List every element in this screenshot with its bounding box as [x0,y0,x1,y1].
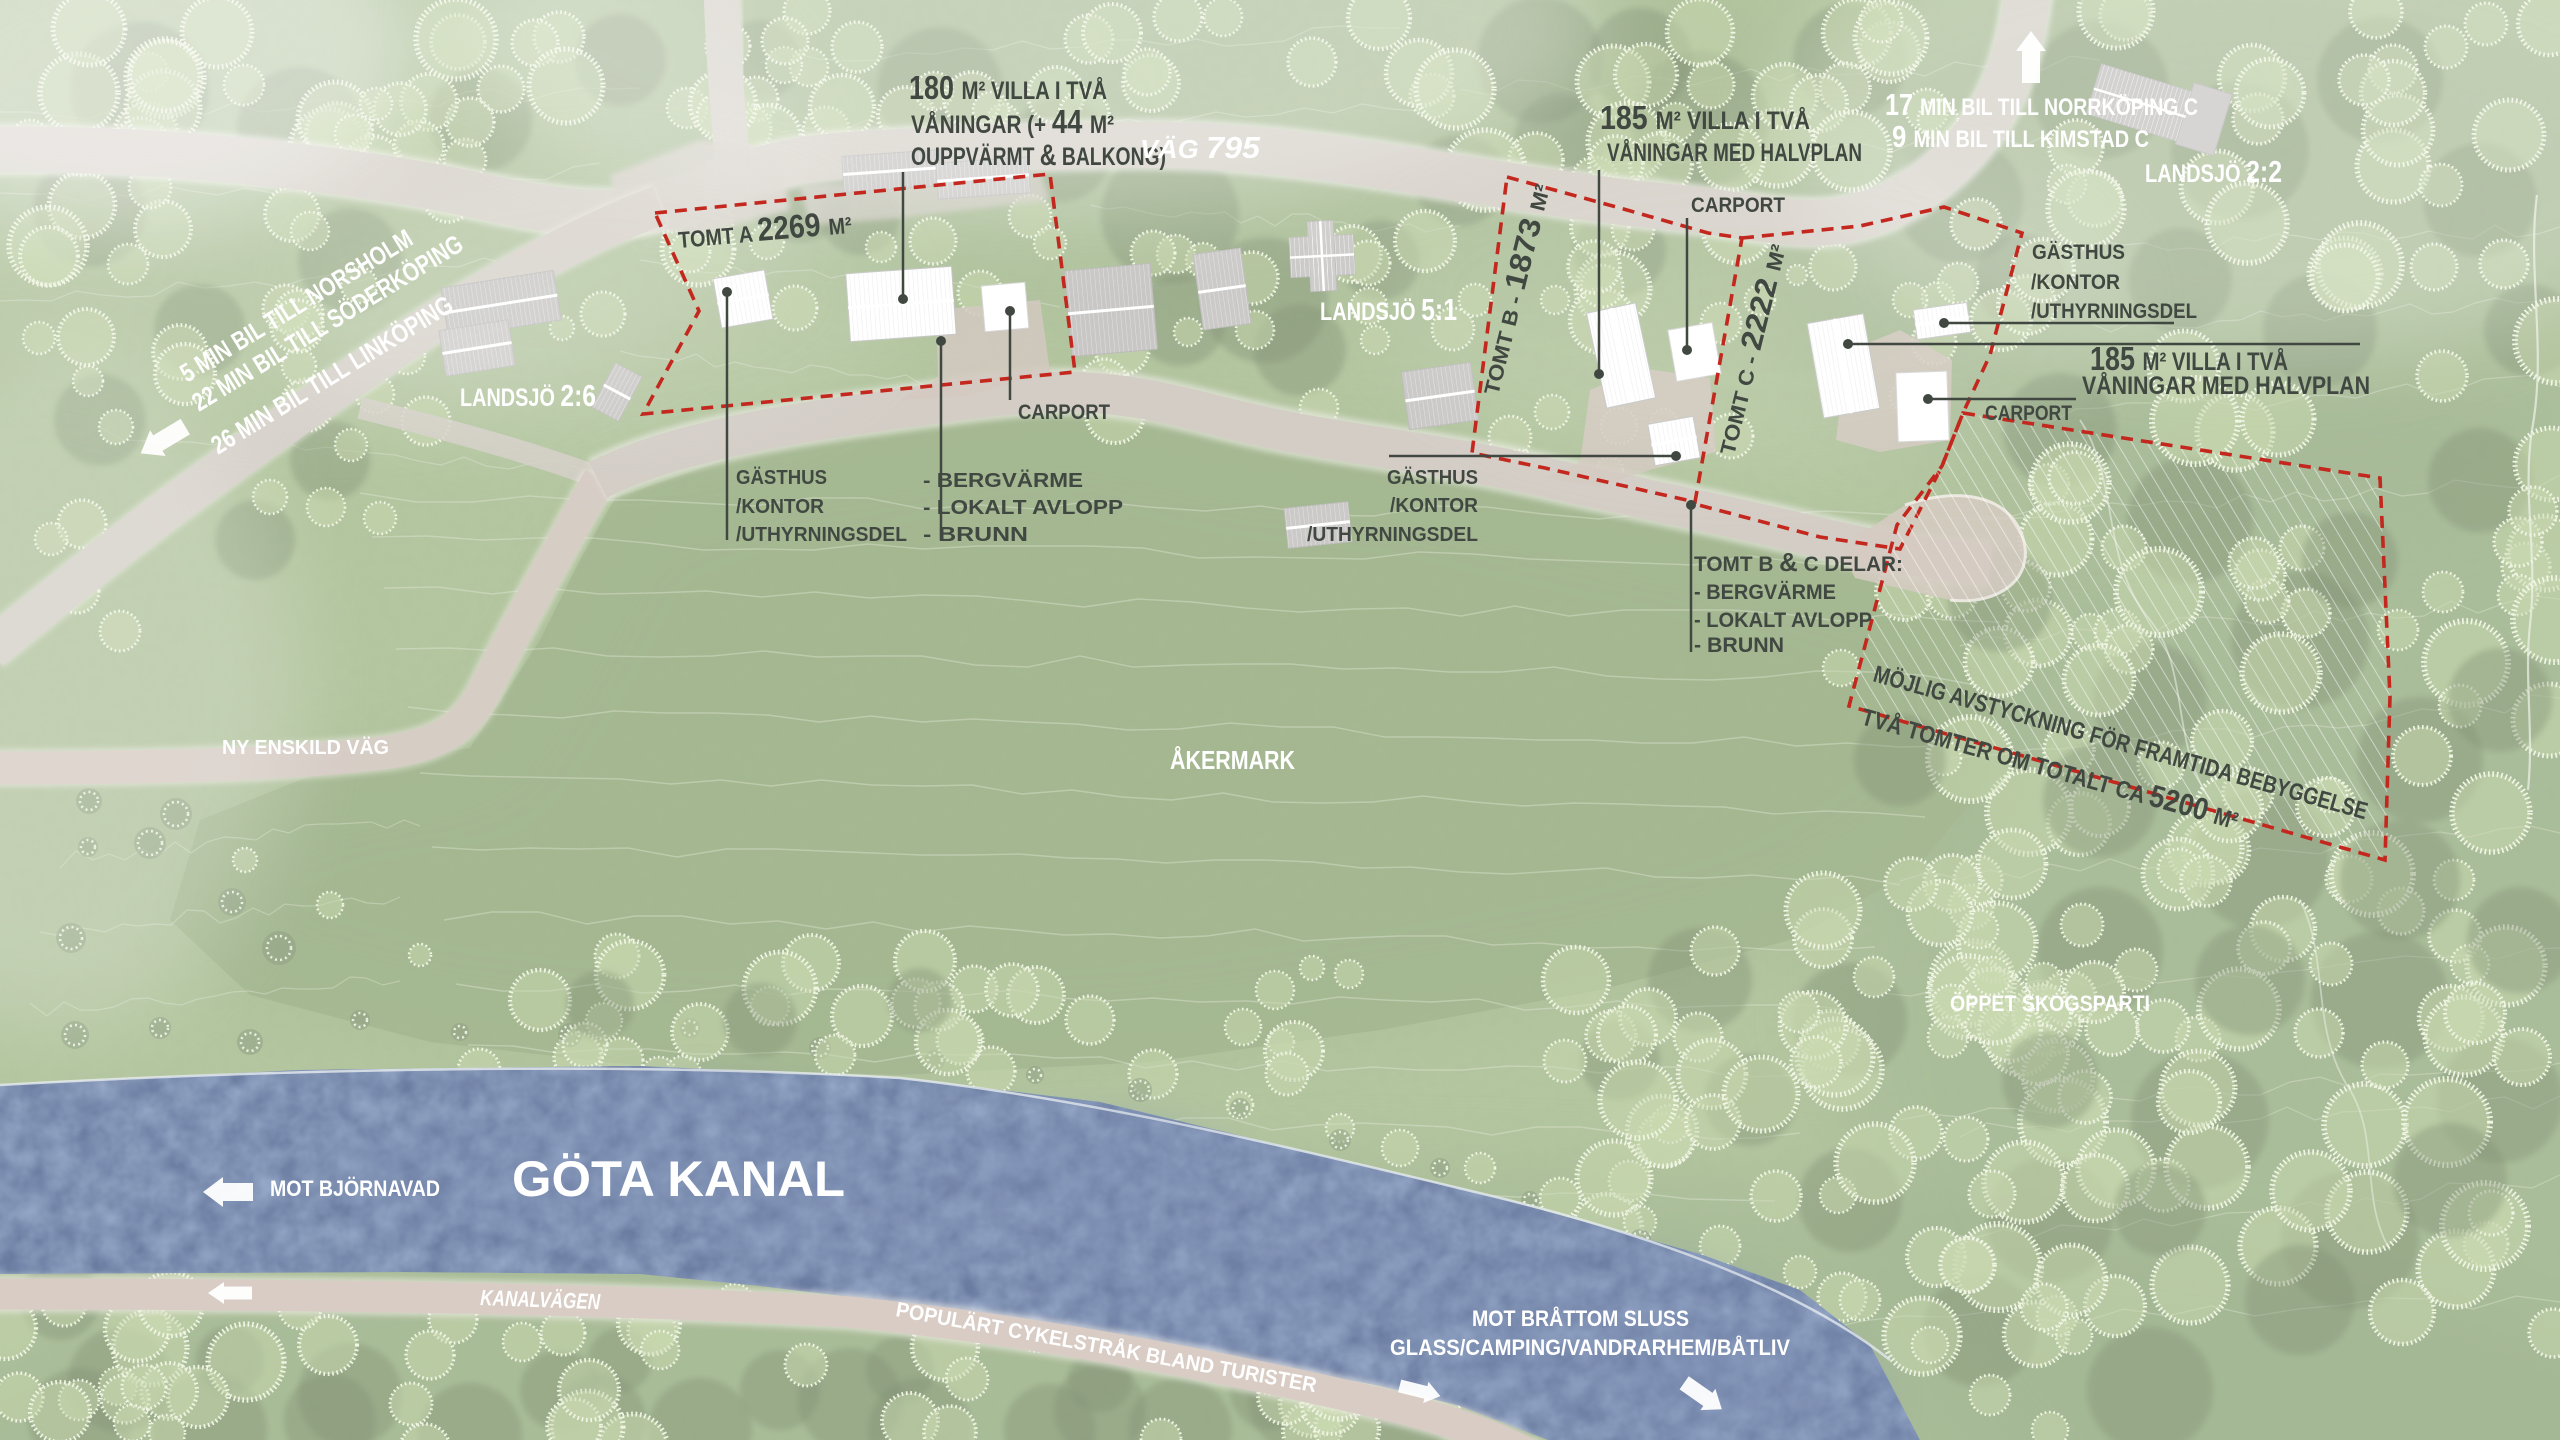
svg-text:MOT BRÅTTOM SLUSS: MOT BRÅTTOM SLUSS [1472,1305,1689,1331]
svg-text:VÄG 795: VÄG 795 [1140,130,1261,165]
svg-text:VÅNINGAR MED HALVPLAN: VÅNINGAR MED HALVPLAN [1607,138,1862,167]
svg-text:/KONTOR: /KONTOR [2031,271,2120,294]
svg-text:/UTHYRNINGSDEL: /UTHYRNINGSDEL [1307,524,1478,546]
svg-text:- BRUNN: - BRUNN [923,524,1028,546]
svg-text:OUPPVÄRMT & BALKONG): OUPPVÄRMT & BALKONG) [911,139,1166,172]
svg-text:LANDSJÖ 2:2: LANDSJÖ 2:2 [2145,154,2282,189]
svg-text:/KONTOR: /KONTOR [736,496,825,518]
svg-text:/UTHYRNINGSDEL: /UTHYRNINGSDEL [736,524,907,546]
svg-text:/KONTOR: /KONTOR [1390,495,1479,517]
svg-text:CARPORT: CARPORT [1018,401,1110,424]
svg-text:/UTHYRNINGSDEL: /UTHYRNINGSDEL [2031,300,2197,323]
svg-text:CARPORT: CARPORT [1691,194,1785,217]
svg-text:LANDSJÖ 5:1: LANDSJÖ 5:1 [1320,292,1457,327]
svg-text:LANDSJÖ 2:6: LANDSJÖ 2:6 [460,378,596,413]
svg-text:ÖPPET SKOGSPARTI: ÖPPET SKOGSPARTI [1950,991,2150,1016]
svg-text:CARPORT: CARPORT [1985,402,2072,425]
svg-text:MOT BJÖRNAVAD: MOT BJÖRNAVAD [270,1176,440,1201]
svg-text:GLASS/CAMPING/VANDRARHEM/BÅTLI: GLASS/CAMPING/VANDRARHEM/BÅTLIV [1390,1334,1790,1360]
svg-text:- BRUNN: - BRUNN [1694,634,1784,657]
svg-text:- BERGVÄRME: - BERGVÄRME [1694,581,1836,604]
svg-text:- LOKALT AVLOPP: - LOKALT AVLOPP [923,497,1123,519]
svg-text:- LOKALT AVLOPP: - LOKALT AVLOPP [1694,609,1872,632]
svg-text:ÅKERMARK: ÅKERMARK [1170,745,1295,775]
svg-text:- BERGVÄRME: - BERGVÄRME [923,469,1083,492]
svg-text:GÄSTHUS: GÄSTHUS [1387,466,1478,489]
svg-text:GÄSTHUS: GÄSTHUS [736,466,827,489]
svg-text:GÄSTHUS: GÄSTHUS [2032,241,2125,264]
svg-text:KANALVÄGEN: KANALVÄGEN [480,1285,602,1314]
svg-text:NY ENSKILD VÄG: NY ENSKILD VÄG [222,736,389,759]
svg-text:VÅNINGAR MED HALVPLAN: VÅNINGAR MED HALVPLAN [2082,371,2370,400]
svg-text:GÖTA KANAL: GÖTA KANAL [512,1151,845,1207]
